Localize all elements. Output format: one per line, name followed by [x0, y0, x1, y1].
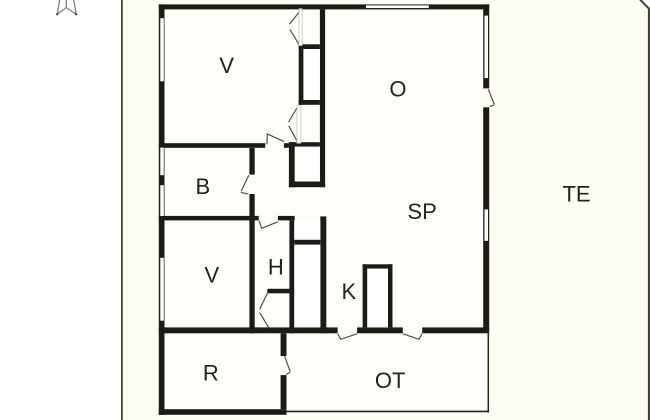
- svg-text:K: K: [341, 279, 356, 304]
- svg-text:O: O: [389, 76, 406, 101]
- svg-text:B: B: [196, 174, 211, 199]
- svg-text:V: V: [219, 53, 234, 78]
- svg-text:SP: SP: [407, 199, 436, 224]
- svg-text:V: V: [204, 262, 219, 287]
- svg-text:R: R: [203, 360, 219, 385]
- svg-text:TE: TE: [562, 182, 590, 207]
- svg-text:H: H: [268, 255, 284, 280]
- svg-text:OT: OT: [375, 368, 406, 393]
